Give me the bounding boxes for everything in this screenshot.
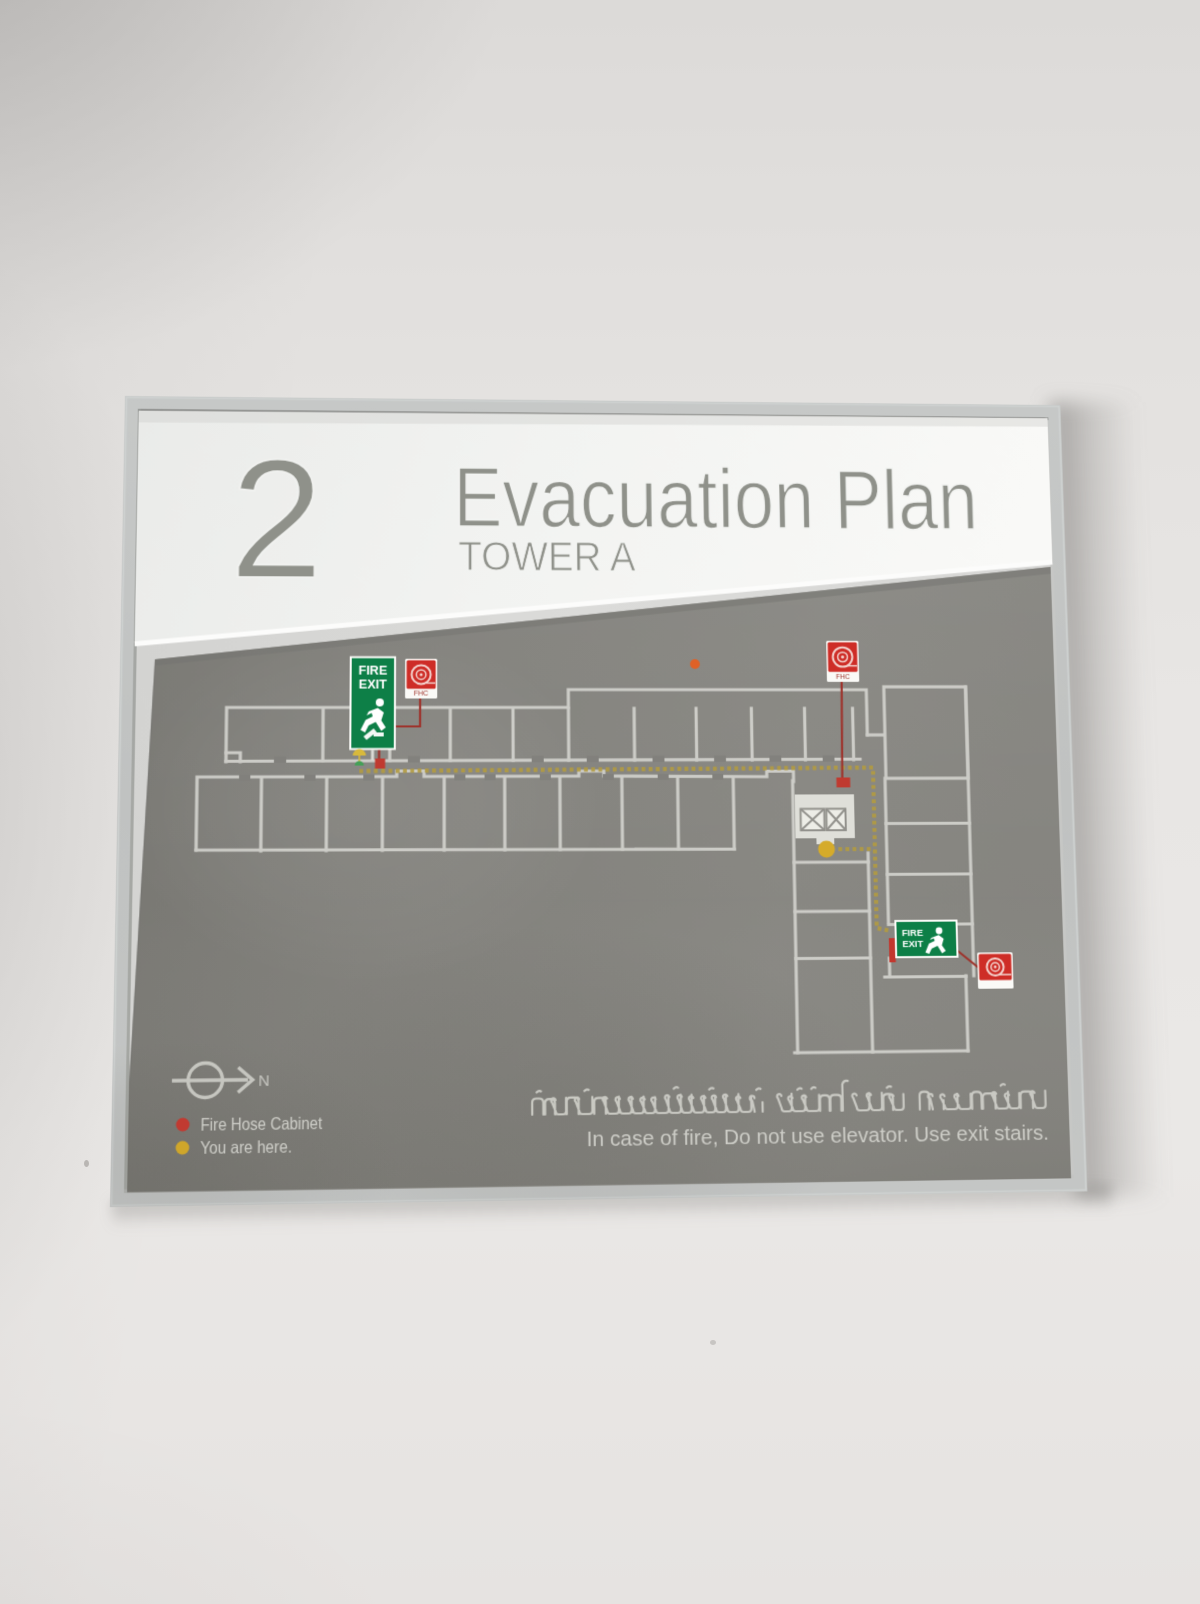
svg-text:N: N [258, 1073, 269, 1090]
svg-text:FHC: FHC [414, 691, 429, 698]
svg-text:TOWER A: TOWER A [458, 533, 636, 580]
svg-text:You are here.: You are here. [200, 1138, 292, 1159]
svg-text:EXIT: EXIT [902, 939, 923, 949]
svg-text:FIRE: FIRE [902, 928, 924, 938]
svg-text:EXIT: EXIT [359, 677, 388, 691]
svg-text:2: 2 [229, 424, 324, 613]
svg-text:FHC: FHC [836, 674, 850, 681]
svg-text:Fire Hose Cabinet: Fire Hose Cabinet [200, 1114, 322, 1135]
svg-text:FIRE: FIRE [359, 663, 388, 677]
